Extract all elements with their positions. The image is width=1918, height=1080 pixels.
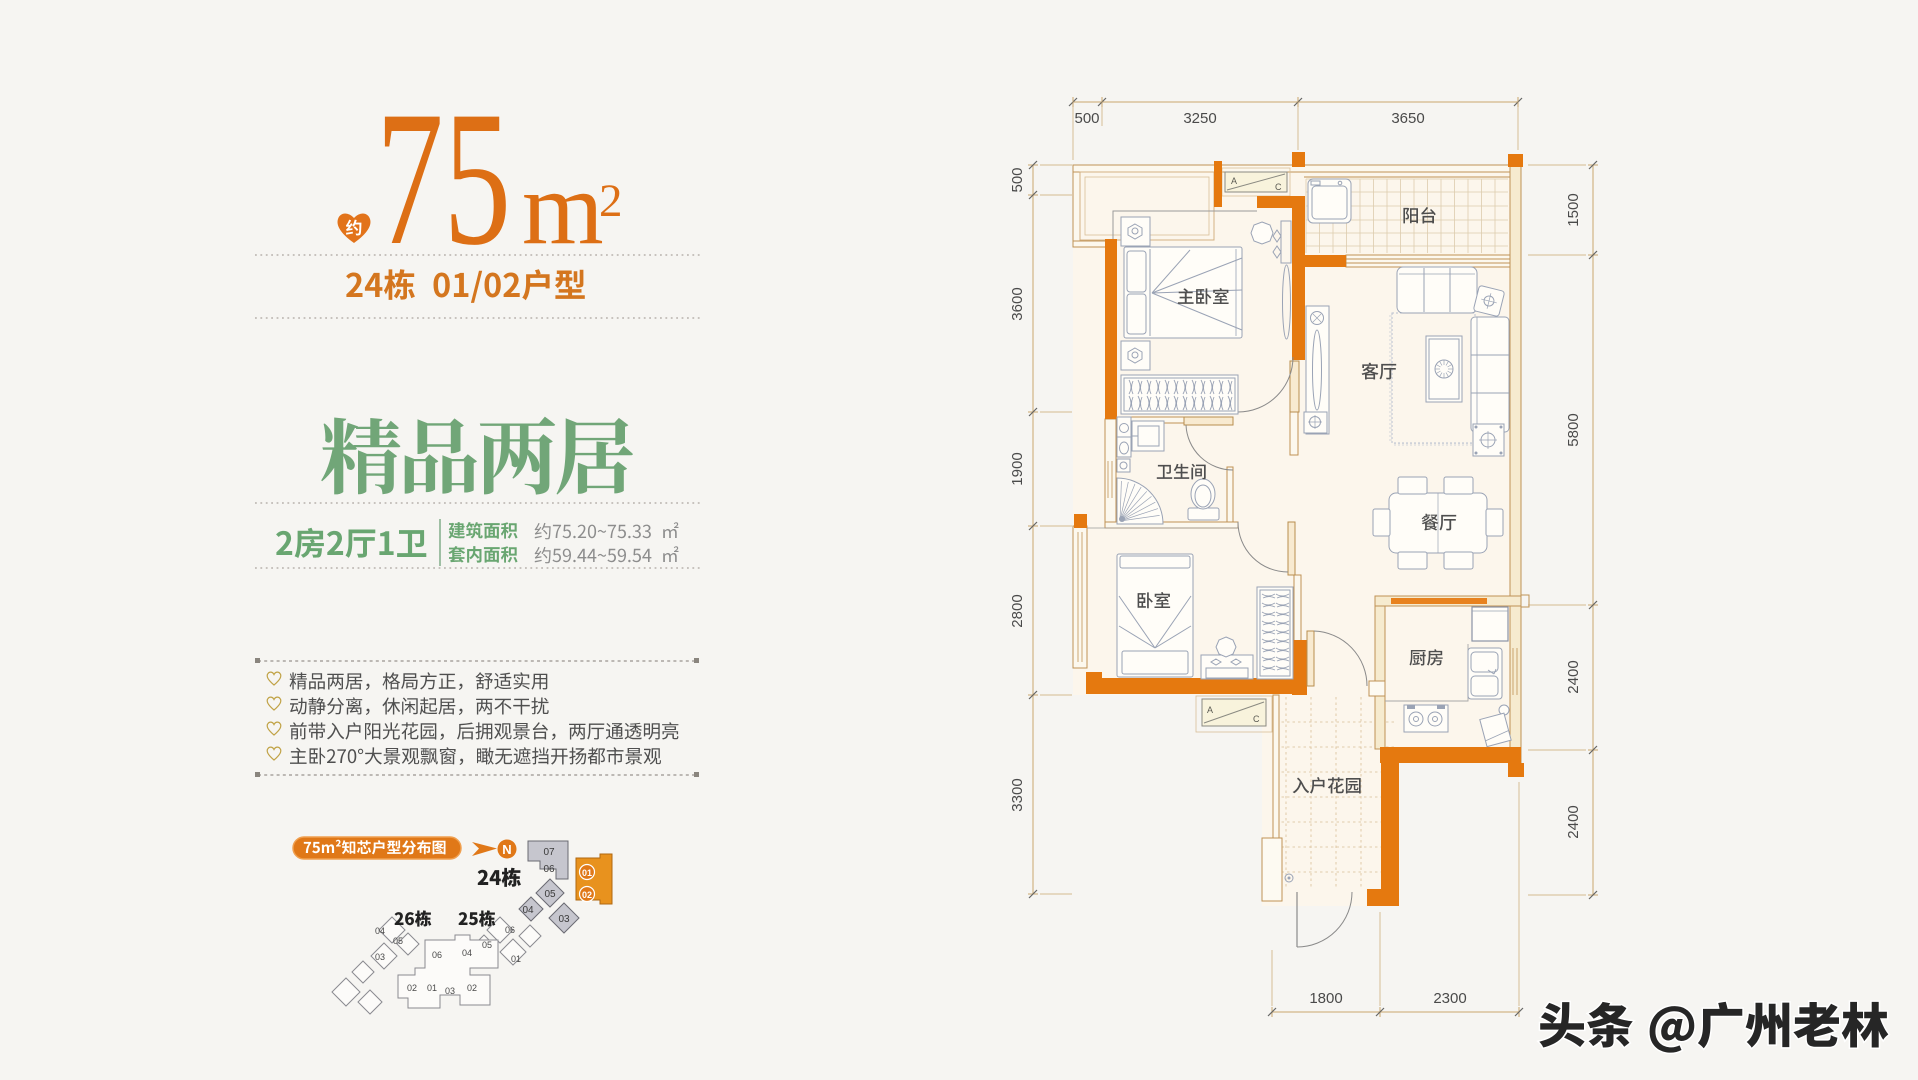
- svg-text:04: 04: [522, 905, 534, 916]
- svg-text:2400: 2400: [1565, 660, 1582, 693]
- svg-text:500: 500: [1009, 167, 1026, 192]
- svg-text:A: A: [1207, 705, 1213, 715]
- svg-text:2400: 2400: [1565, 805, 1582, 838]
- svg-text:1900: 1900: [1009, 452, 1026, 485]
- svg-text:01: 01: [427, 983, 437, 993]
- svg-text:03: 03: [375, 952, 385, 962]
- svg-text:06: 06: [505, 925, 515, 935]
- svg-text:02: 02: [467, 983, 477, 993]
- svg-text:75: 75: [376, 73, 511, 286]
- svg-text:04: 04: [462, 948, 472, 958]
- svg-text:04: 04: [375, 926, 385, 936]
- svg-text:C: C: [1275, 182, 1282, 192]
- svg-text:07: 07: [543, 847, 555, 858]
- svg-text:5800: 5800: [1565, 413, 1582, 446]
- svg-text:A: A: [1231, 176, 1237, 186]
- svg-text:1800: 1800: [1309, 990, 1342, 1007]
- svg-text:01: 01: [511, 954, 521, 964]
- svg-text:03: 03: [558, 914, 570, 925]
- svg-text:2300: 2300: [1433, 990, 1466, 1007]
- svg-text:3650: 3650: [1391, 110, 1424, 127]
- svg-text:N: N: [502, 842, 511, 857]
- svg-text:3600: 3600: [1009, 287, 1026, 320]
- svg-text:3300: 3300: [1009, 778, 1026, 811]
- svg-text:C: C: [1253, 714, 1260, 724]
- svg-text:05: 05: [544, 889, 556, 900]
- svg-text:06: 06: [432, 950, 442, 960]
- svg-text:05: 05: [393, 936, 403, 946]
- svg-text:05: 05: [482, 940, 492, 950]
- svg-text:06: 06: [543, 864, 555, 875]
- svg-text:2: 2: [599, 175, 623, 227]
- svg-text:03: 03: [445, 986, 455, 996]
- svg-text:500: 500: [1074, 110, 1099, 127]
- svg-text:3250: 3250: [1183, 110, 1216, 127]
- svg-text:1500: 1500: [1565, 193, 1582, 226]
- svg-text:02: 02: [582, 890, 592, 900]
- svg-text:02: 02: [407, 983, 417, 993]
- svg-text:m: m: [522, 149, 604, 266]
- svg-text:2800: 2800: [1009, 594, 1026, 627]
- svg-text:01: 01: [582, 868, 592, 878]
